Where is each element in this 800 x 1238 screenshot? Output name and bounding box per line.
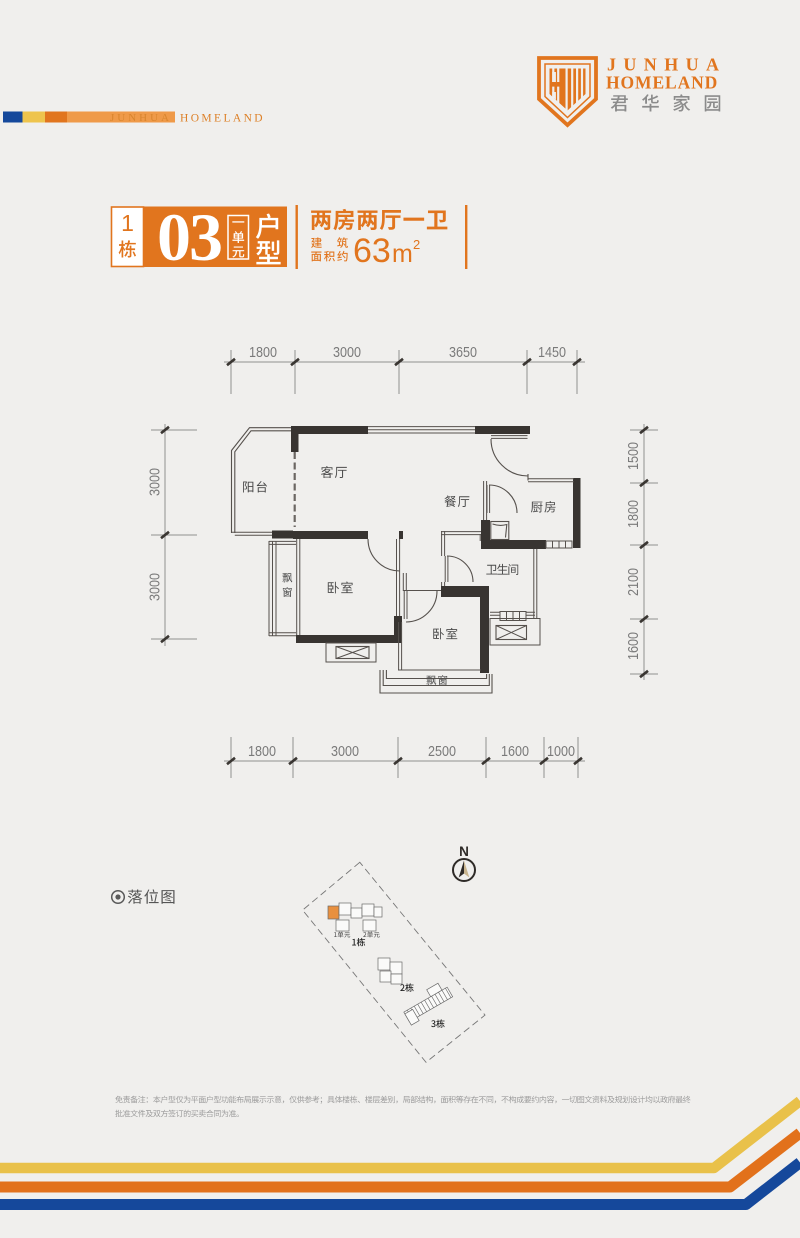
svg-text:1800: 1800	[626, 500, 642, 528]
svg-text:3000: 3000	[333, 345, 361, 361]
svg-text:03: 03	[157, 199, 221, 275]
svg-text:HOMELAND: HOMELAND	[180, 113, 265, 125]
svg-text:63: 63	[353, 232, 391, 270]
svg-text:1: 1	[121, 210, 134, 236]
svg-text:3000: 3000	[148, 468, 164, 496]
svg-text:3650: 3650	[449, 345, 477, 361]
svg-text:N: N	[459, 844, 469, 859]
svg-text:1800: 1800	[249, 345, 277, 361]
svg-text:HOMELAND: HOMELAND	[606, 73, 718, 93]
svg-text:1450: 1450	[538, 345, 566, 361]
svg-text:2100: 2100	[626, 568, 642, 596]
svg-text:2500: 2500	[428, 744, 456, 760]
svg-text:m: m	[392, 240, 413, 268]
svg-text:JUNHUA: JUNHUA	[607, 55, 726, 75]
svg-text:1600: 1600	[501, 744, 529, 760]
svg-text:3000: 3000	[148, 573, 164, 601]
svg-text:1800: 1800	[248, 744, 276, 760]
svg-text:1600: 1600	[626, 632, 642, 660]
svg-text:1500: 1500	[626, 442, 642, 470]
svg-text:JUNHUA: JUNHUA	[110, 112, 172, 124]
svg-text:2: 2	[413, 237, 420, 252]
svg-text:1000: 1000	[547, 744, 575, 760]
svg-text:3000: 3000	[331, 744, 359, 760]
